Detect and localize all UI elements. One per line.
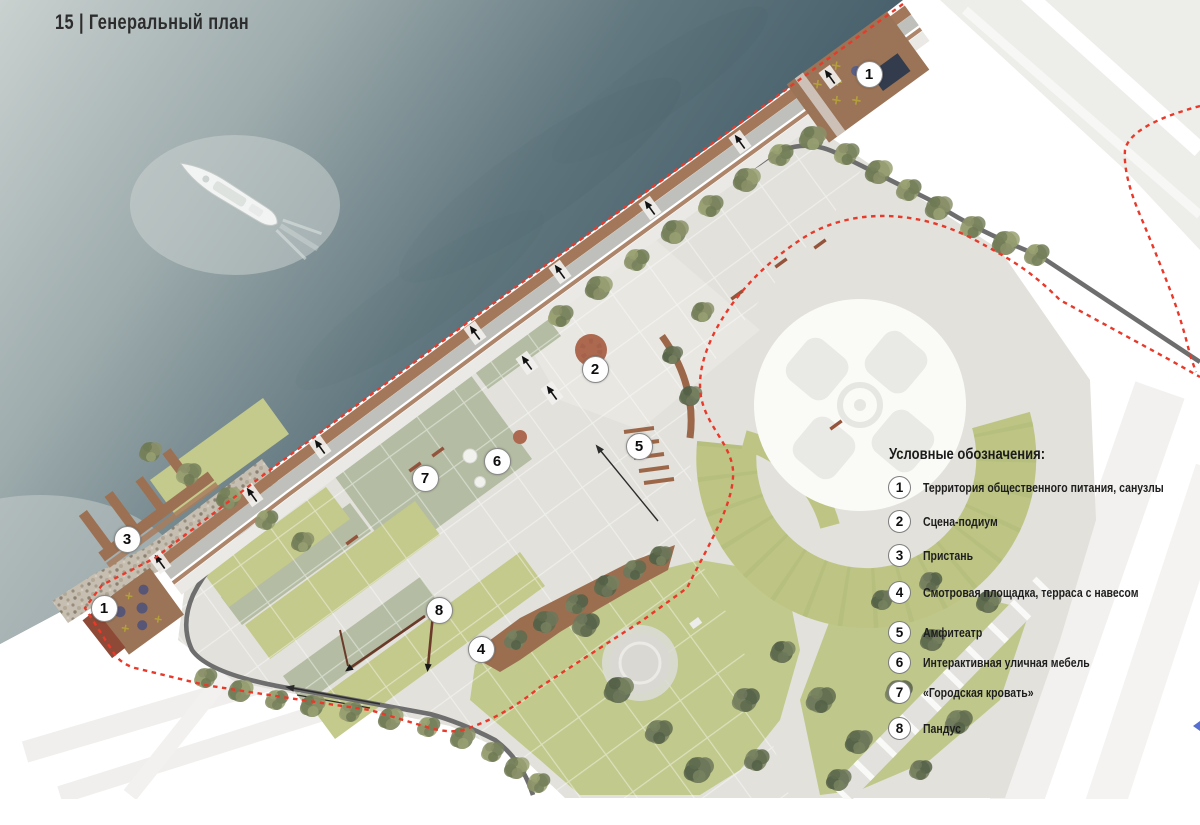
plan-marker-8: 8 [426,597,453,624]
legend-item-label: Территория общественного питания, санузл… [923,481,1200,495]
legend-item-5: 5Амфитеатр [888,621,994,644]
legend-item-6: 6Интерактивная уличная мебель [888,651,1121,674]
cursor-artifact [1193,721,1200,731]
page-title: 15 | Генеральный план [55,11,304,35]
legend-item-3: 3Пристань [888,544,983,567]
legend-item-number: 3 [888,544,911,567]
tree-cluster [527,773,550,793]
legend-item-number: 2 [888,510,911,533]
legend-item-7: 7«Городская кровать» [888,681,1055,704]
legend-item-number: 4 [888,581,911,604]
legend-item-label: Амфитеатр [923,626,994,640]
plan-marker-3: 3 [114,526,141,553]
legend-item-label: Пандус [923,722,968,736]
plan-marker-5: 5 [626,433,653,460]
legend-item-number: 1 [888,476,911,499]
legend-item-label: Смотровая площадка, терраса с навесом [923,586,1180,600]
legend-item-label: «Городская кровать» [923,686,1055,700]
masterplan-page: 15 | Генеральный план Условные обозначен… [0,0,1200,825]
plan-marker-6: 6 [484,448,511,475]
legend-item-1: 1Территория общественного питания, сануз… [888,476,1200,499]
legend-item-label: Сцена-подиум [923,515,1012,529]
tree-cluster [265,690,288,710]
legend-item-number: 6 [888,651,911,674]
legend-item-number: 8 [888,717,911,740]
plan-marker-1: 1 [91,595,118,622]
legend-item-number: 7 [888,681,911,704]
plan-marker-2: 2 [582,356,609,383]
plan-marker-1: 1 [856,61,883,88]
legend-title: Условные обозначения: [889,446,1075,464]
legend-item-2: 2Сцена-подиум [888,510,1012,533]
legend-item-label: Пристань [923,549,983,563]
tree-cluster [1024,244,1050,266]
legend-item-4: 4Смотровая площадка, терраса с навесом [888,581,1180,604]
legend-item-8: 8Пандус [888,717,968,740]
tree-cluster [481,742,504,762]
plan-marker-4: 4 [468,636,495,663]
plan-marker-7: 7 [412,465,439,492]
legend-item-number: 5 [888,621,911,644]
legend-item-label: Интерактивная уличная мебель [923,656,1121,670]
